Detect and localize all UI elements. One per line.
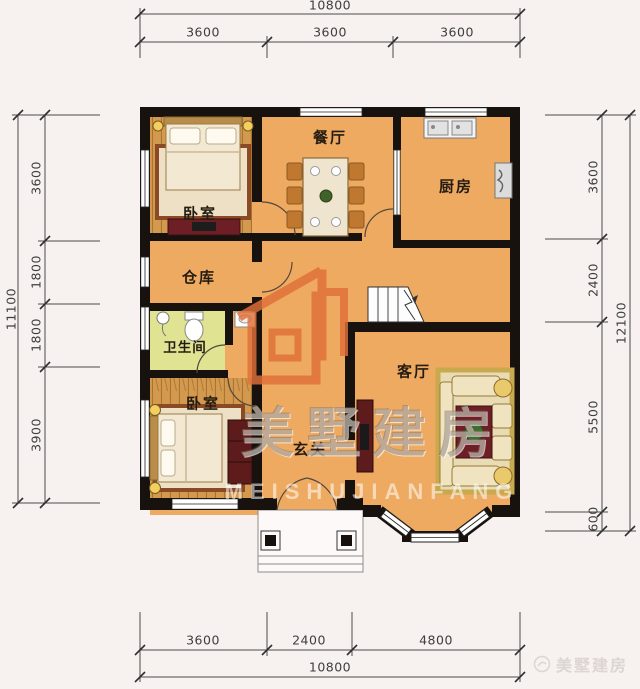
dim-top-total: 10800 bbox=[309, 0, 351, 13]
room-label-dining: 餐厅 bbox=[313, 127, 347, 148]
dim-right-seg-1: 2400 bbox=[586, 263, 601, 297]
dim-left-seg-0: 3600 bbox=[29, 161, 44, 195]
dim-left-seg-2: 1800 bbox=[29, 318, 44, 352]
dim-right-seg-2: 5500 bbox=[586, 400, 601, 434]
dim-right-total: 12100 bbox=[614, 302, 629, 344]
entry-porch bbox=[258, 510, 363, 572]
dim-top-seg-1: 3600 bbox=[313, 25, 347, 40]
dim-right-seg-3: 600 bbox=[586, 506, 601, 531]
floor-plan-canvas: 卧室 餐厅 厨房 仓库 卫生间 卧室 客厅 玄关 10800 3600 3600… bbox=[0, 0, 640, 689]
room-label-bathroom: 卫生间 bbox=[163, 336, 207, 356]
room-label-living: 客厅 bbox=[397, 361, 431, 382]
watermark-latin-text: MEISHUJIANFANG bbox=[225, 479, 520, 505]
watermark-brand-text: 美墅建房 bbox=[240, 389, 504, 468]
dim-right-seg-0: 3600 bbox=[586, 160, 601, 194]
floor-plan-drawing bbox=[0, 0, 640, 689]
porch-column-left bbox=[265, 535, 276, 546]
bedside-lamp bbox=[150, 483, 161, 494]
bedside-lamp bbox=[153, 121, 163, 131]
dim-left-total: 11100 bbox=[4, 288, 19, 330]
footer-logo-icon bbox=[533, 655, 551, 673]
room-label-kitchen: 厨房 bbox=[439, 176, 473, 197]
porch-column-right bbox=[341, 535, 352, 546]
footer-brand: 美墅建房 bbox=[533, 652, 628, 676]
dim-left-seg-3: 3900 bbox=[29, 418, 44, 452]
footer-brand-label: 美墅建房 bbox=[556, 652, 628, 676]
room-label-bedroom-top: 卧室 bbox=[183, 203, 217, 224]
dim-top-seg-0: 3600 bbox=[186, 25, 220, 40]
dim-top-seg-2: 3600 bbox=[440, 25, 474, 40]
dining-furniture bbox=[287, 158, 364, 236]
dim-bottom-seg-1: 2400 bbox=[292, 633, 326, 648]
room-label-bedroom-bottom: 卧室 bbox=[186, 393, 220, 414]
bedside-lamp bbox=[243, 121, 253, 131]
dim-left-seg-1: 1800 bbox=[29, 255, 44, 289]
room-label-storage: 仓库 bbox=[182, 267, 216, 288]
bedside-lamp bbox=[150, 405, 161, 416]
shower-head bbox=[157, 312, 169, 324]
dim-bottom-seg-2: 4800 bbox=[419, 633, 453, 648]
dim-bottom-seg-0: 3600 bbox=[186, 633, 220, 648]
dim-bottom-total: 10800 bbox=[309, 660, 351, 675]
